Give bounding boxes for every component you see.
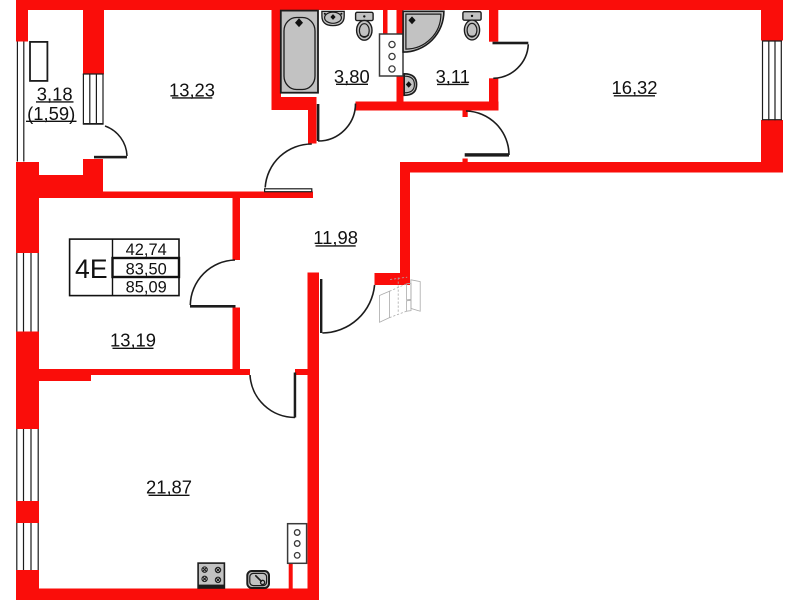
svg-text:3,11: 3,11 [436,66,470,87]
svg-text:11,98: 11,98 [313,227,358,248]
svg-text:13,19: 13,19 [110,330,156,351]
svg-text:83,50: 83,50 [126,260,167,278]
svg-text:42,74: 42,74 [126,241,167,259]
svg-text:21,87: 21,87 [146,477,192,498]
svg-text:85,09: 85,09 [126,279,167,297]
svg-text:4E: 4E [75,254,108,284]
svg-text:16,32: 16,32 [611,77,657,98]
